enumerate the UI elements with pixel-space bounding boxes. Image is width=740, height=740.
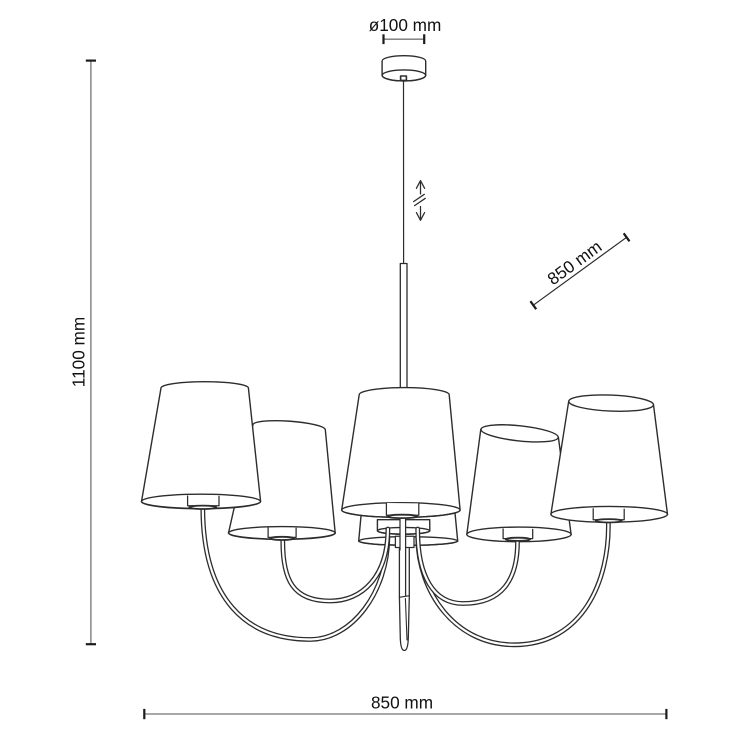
svg-text:ø100 mm: ø100 mm <box>369 15 442 35</box>
svg-text:850 mm: 850 mm <box>371 693 433 713</box>
svg-text:1100 mm: 1100 mm <box>69 317 89 387</box>
